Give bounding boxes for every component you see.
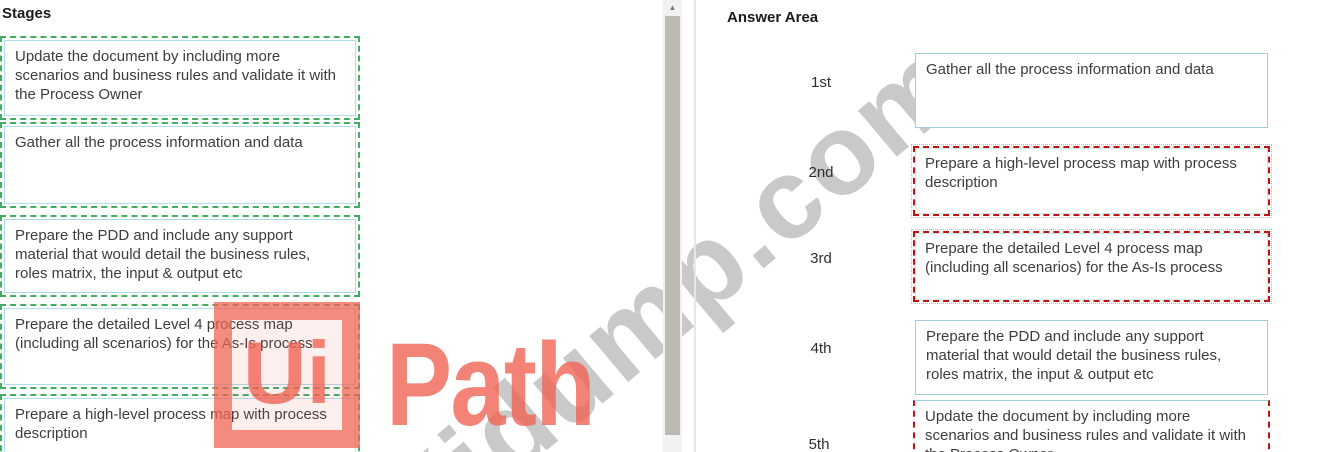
answer-slot-label-2nd: 2nd [799,164,843,181]
answer-slot-label-1st: 1st [799,74,843,91]
stage-option-text: Gather all the process information and d… [15,134,303,151]
stage-option[interactable]: Update the document by including more sc… [4,40,356,116]
answer-slot-5[interactable]: Update the document by including more sc… [913,400,1270,452]
stage-option-text: Update the document by including more sc… [15,48,336,103]
stage-option[interactable]: Prepare the detailed Level 4 process map… [4,308,356,385]
answer-slot-2[interactable]: Prepare a high-level process map with pr… [913,146,1270,216]
stage-option-text: Prepare the detailed Level 4 process map… [15,316,313,352]
answer-slot-text: Gather all the process information and d… [926,61,1214,78]
answer-slot-label-5th: 5th [797,436,841,452]
answer-slot-text: Prepare the detailed Level 4 process map… [925,240,1223,276]
scrollbar-track[interactable]: ▲ [663,0,682,452]
answer-slot-label-4th: 4th [799,340,843,357]
drag-drop-question-screen: Kidump.com Stages Update the document by… [0,0,1337,452]
answer-slot-4[interactable]: Prepare the PDD and include any support … [915,320,1268,395]
answer-slot-text: Prepare a high-level process map with pr… [925,155,1237,191]
answer-area-title: Answer Area [727,9,818,26]
stage-option-text: Prepare the PDD and include any support … [15,227,310,282]
stage-option[interactable]: Gather all the process information and d… [4,126,356,204]
answer-slot-3[interactable]: Prepare the detailed Level 4 process map… [913,231,1270,302]
stage-option[interactable]: Prepare the PDD and include any support … [4,219,356,293]
scroll-up-arrow-icon[interactable]: ▲ [663,0,682,15]
stage-option[interactable]: Prepare a high-level process map with pr… [4,398,356,452]
answer-slot-1[interactable]: Gather all the process information and d… [915,53,1268,128]
stage-option-text: Prepare a high-level process map with pr… [15,406,327,442]
answer-slot-text: Prepare the PDD and include any support … [926,328,1221,383]
answer-slot-text: Update the document by including more sc… [925,408,1246,452]
panel-divider [694,0,696,452]
scrollbar-thumb[interactable] [665,16,680,435]
answer-slot-label-3rd: 3rd [799,250,843,267]
stages-panel-title: Stages [2,5,51,22]
